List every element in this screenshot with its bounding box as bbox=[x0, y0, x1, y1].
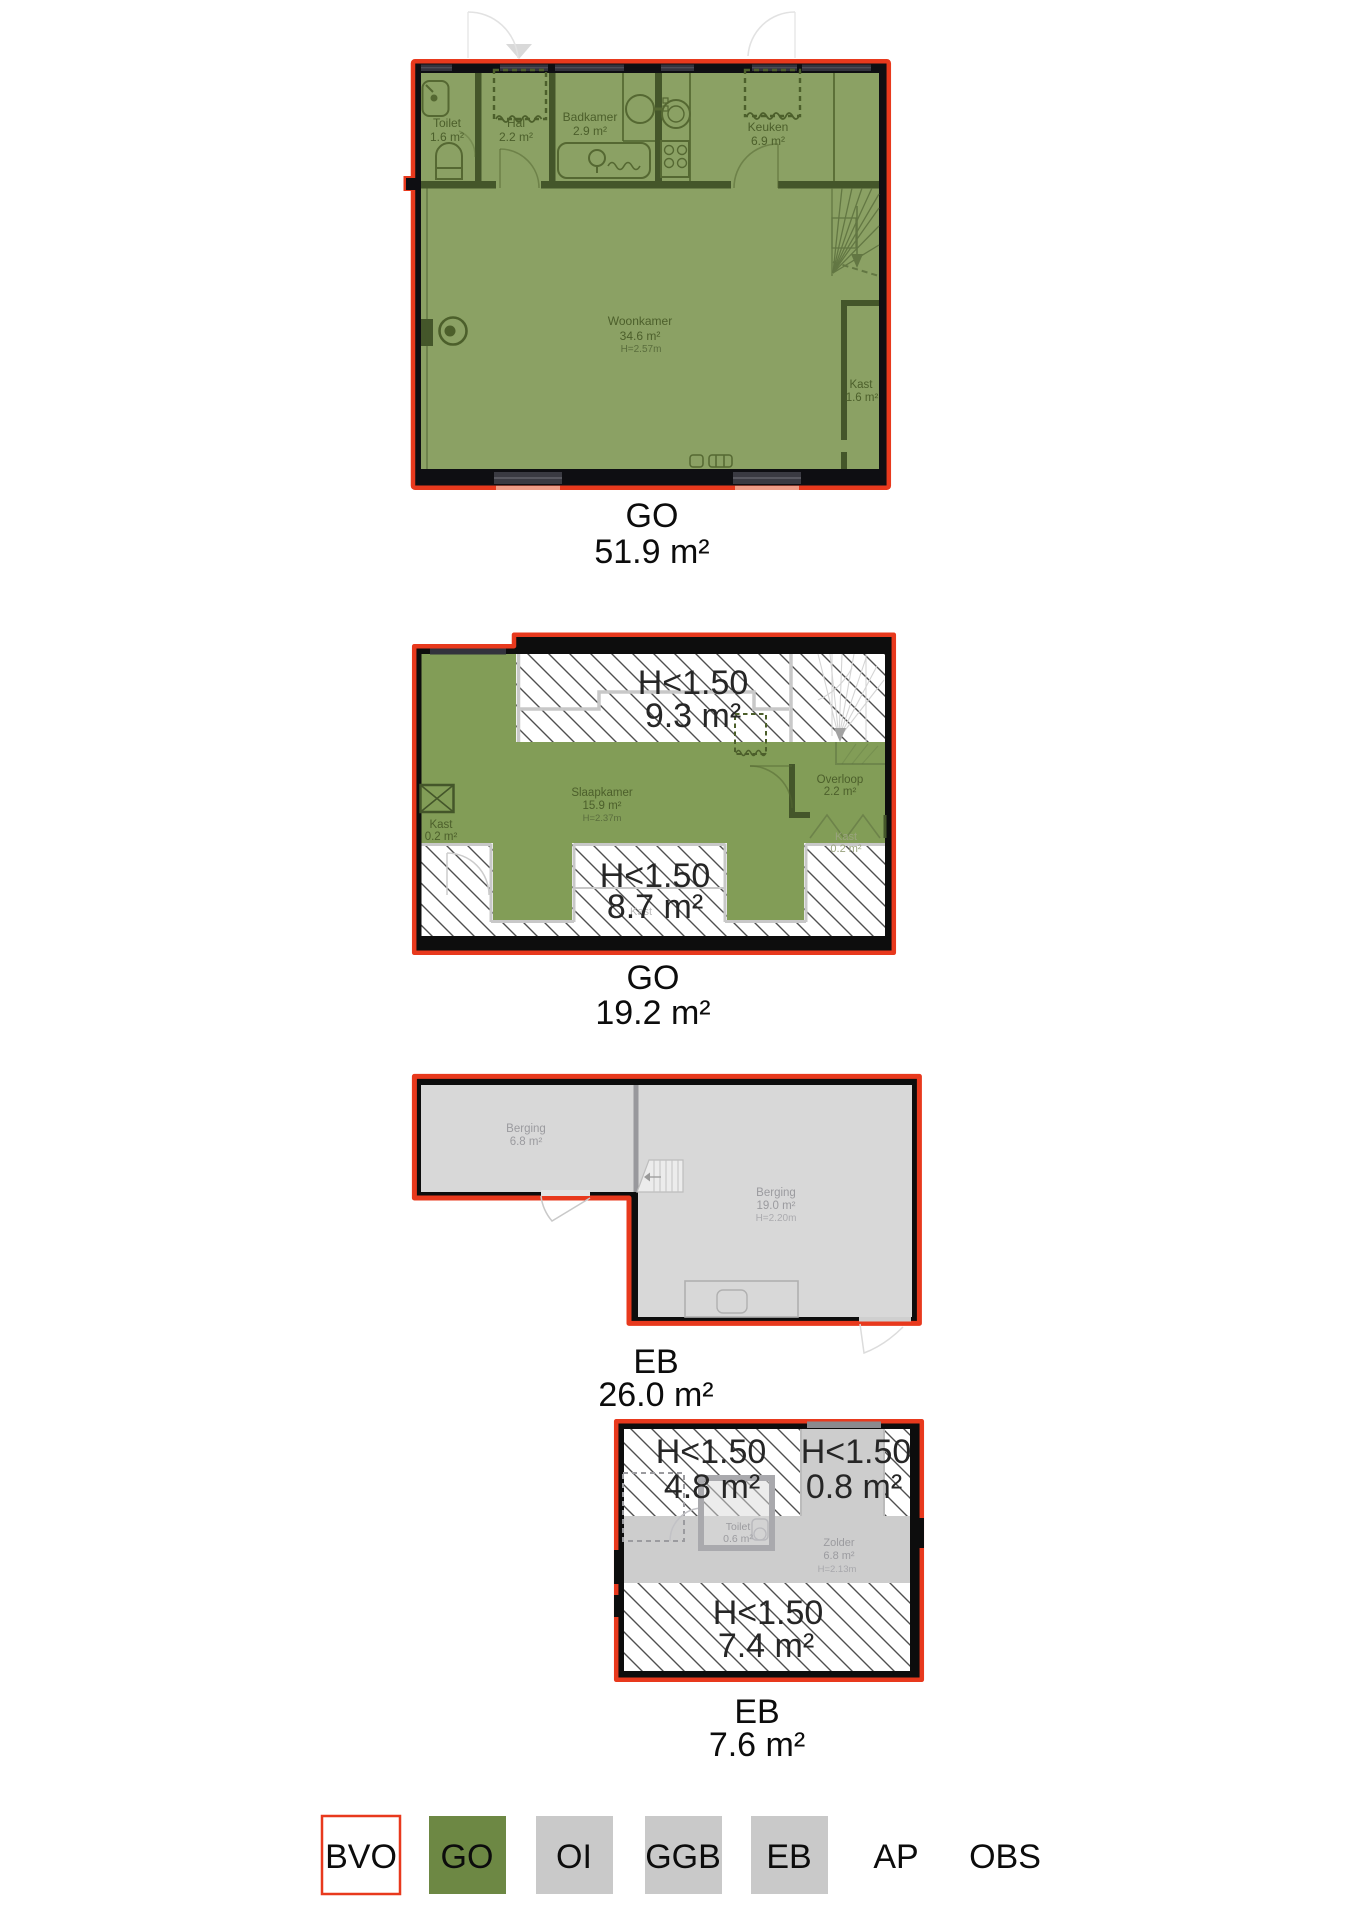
svg-text:2.9 m²: 2.9 m² bbox=[573, 124, 607, 138]
svg-text:BVO: BVO bbox=[325, 1838, 397, 1876]
svg-text:OI: OI bbox=[556, 1838, 592, 1876]
svg-text:Toilet: Toilet bbox=[433, 116, 462, 130]
svg-text:6.8 m²: 6.8 m² bbox=[510, 1136, 543, 1148]
svg-text:0.2 m²: 0.2 m² bbox=[830, 843, 862, 855]
svg-text:Zolder: Zolder bbox=[823, 1537, 855, 1549]
svg-text:2.2 m²: 2.2 m² bbox=[499, 130, 533, 144]
svg-text:GO: GO bbox=[441, 1838, 494, 1876]
svg-text:Kast: Kast bbox=[429, 819, 453, 831]
svg-text:0.6 m²: 0.6 m² bbox=[723, 1533, 753, 1545]
svg-text:7.4 m²: 7.4 m² bbox=[718, 1627, 814, 1665]
svg-text:GO: GO bbox=[627, 959, 680, 997]
svg-text:GGB: GGB bbox=[645, 1838, 721, 1876]
svg-text:1.6 m²: 1.6 m² bbox=[430, 130, 464, 144]
svg-text:Toilet: Toilet bbox=[726, 1521, 751, 1533]
svg-text:H=2.57m: H=2.57m bbox=[621, 344, 662, 355]
svg-text:H=2.13m: H=2.13m bbox=[818, 1564, 857, 1575]
svg-text:9.3 m²: 9.3 m² bbox=[645, 697, 741, 735]
svg-text:51.9 m²: 51.9 m² bbox=[594, 533, 709, 571]
svg-text:Keuken: Keuken bbox=[748, 120, 789, 134]
svg-text:GO: GO bbox=[626, 497, 679, 535]
svg-text:H=2.37m: H=2.37m bbox=[583, 813, 622, 824]
svg-text:Woonkamer: Woonkamer bbox=[608, 314, 672, 328]
svg-text:H<1.50: H<1.50 bbox=[656, 1433, 767, 1471]
svg-text:Overloop: Overloop bbox=[817, 774, 864, 786]
svg-text:19.2 m²: 19.2 m² bbox=[595, 994, 710, 1032]
svg-text:H<1.50: H<1.50 bbox=[801, 1433, 912, 1471]
svg-text:6.8 m²: 6.8 m² bbox=[823, 1550, 855, 1562]
svg-text:AP: AP bbox=[873, 1838, 918, 1876]
svg-text:1.6 m²: 1.6 m² bbox=[846, 392, 879, 404]
svg-text:Hal: Hal bbox=[507, 116, 525, 130]
svg-text:7.6 m²: 7.6 m² bbox=[709, 1726, 805, 1764]
svg-text:26.0 m²: 26.0 m² bbox=[598, 1376, 713, 1414]
svg-text:Kast: Kast bbox=[835, 831, 857, 843]
svg-text:15.9 m²: 15.9 m² bbox=[583, 800, 622, 812]
svg-text:Badkamer: Badkamer bbox=[563, 110, 618, 124]
svg-text:19.0 m²: 19.0 m² bbox=[757, 1200, 796, 1212]
svg-text:H=2.20m: H=2.20m bbox=[756, 1213, 797, 1224]
svg-text:Kast: Kast bbox=[849, 379, 873, 391]
svg-text:2.2 m²: 2.2 m² bbox=[824, 786, 857, 798]
svg-text:4.8 m²: 4.8 m² bbox=[664, 1468, 760, 1506]
svg-text:Berging: Berging bbox=[756, 1187, 796, 1199]
svg-text:0.8 m²: 0.8 m² bbox=[806, 1468, 902, 1506]
svg-text:Slaapkamer: Slaapkamer bbox=[571, 787, 633, 799]
svg-text:8.7 m²: 8.7 m² bbox=[607, 888, 703, 926]
svg-text:34.6 m²: 34.6 m² bbox=[620, 329, 661, 343]
svg-text:EB: EB bbox=[766, 1838, 811, 1876]
svg-text:OBS: OBS bbox=[969, 1838, 1041, 1876]
svg-text:0.2 m²: 0.2 m² bbox=[425, 831, 458, 843]
svg-text:6.9 m²: 6.9 m² bbox=[751, 134, 785, 148]
svg-text:Berging: Berging bbox=[506, 1123, 546, 1135]
